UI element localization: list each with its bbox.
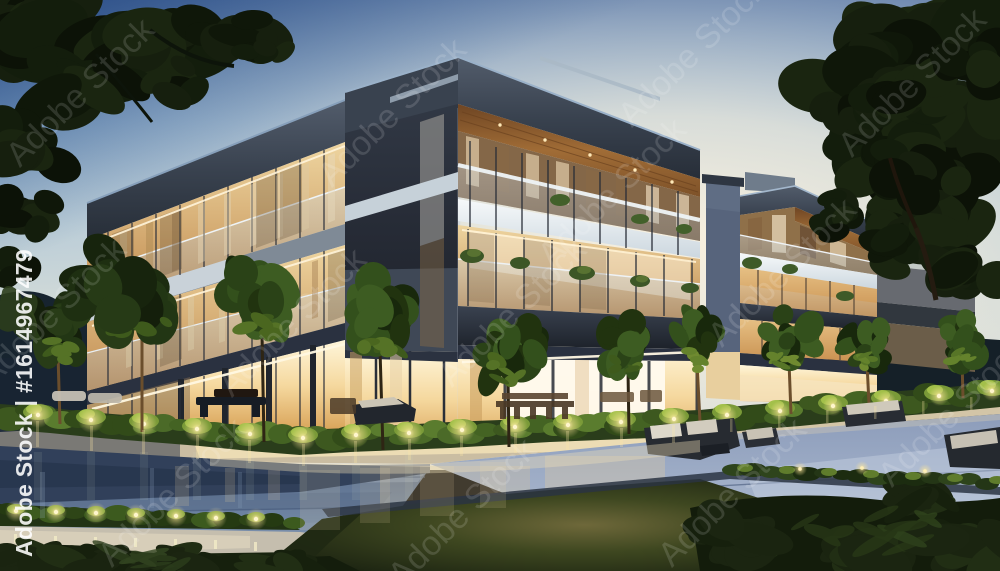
svg-text:Adobe Stock | #1614967479: Adobe Stock | #1614967479 (11, 249, 37, 557)
